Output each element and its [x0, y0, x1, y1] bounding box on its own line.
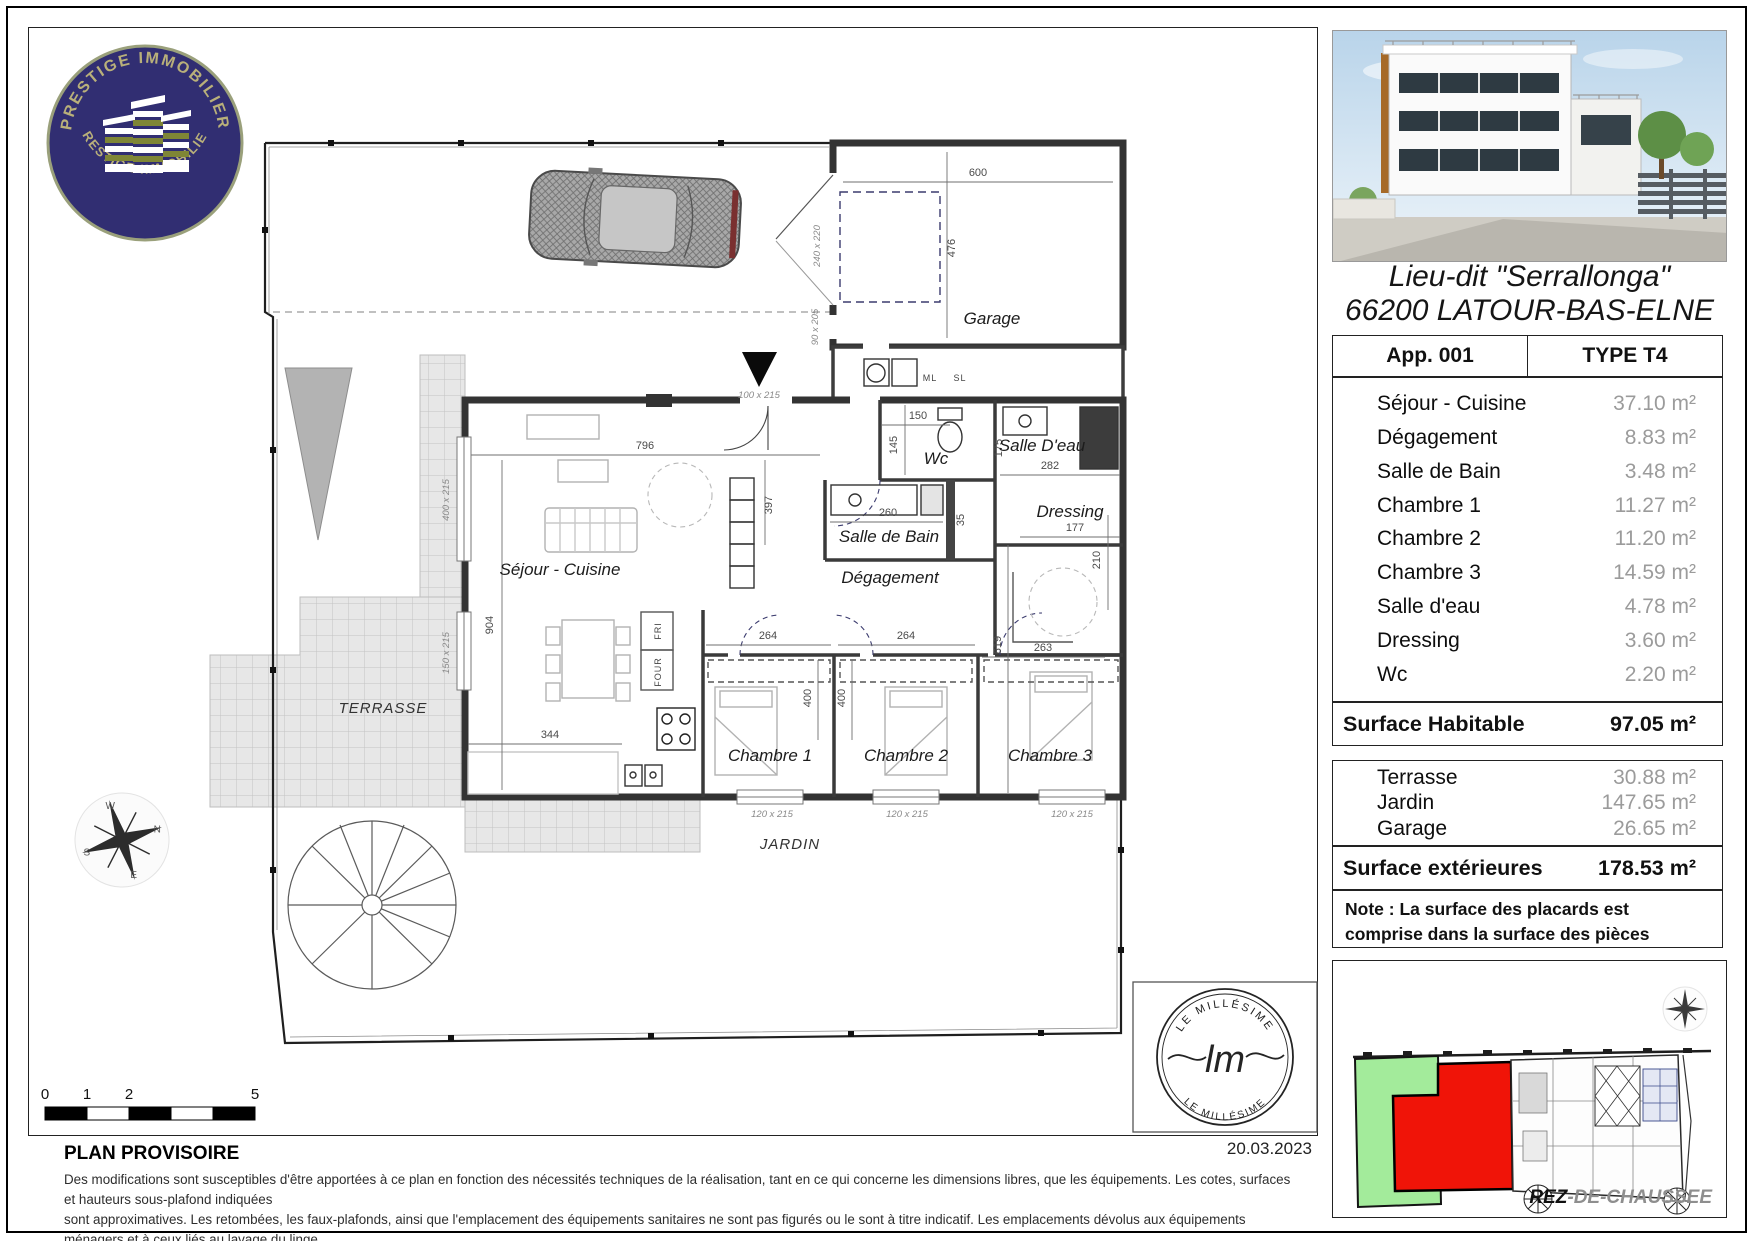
dim-282: 282	[1041, 460, 1059, 472]
surface-exterieures-label: Surface extérieures	[1343, 856, 1543, 881]
scale-bar: 0 1 2 5	[41, 1086, 259, 1120]
table-row: Séjour - Cuisine37.10 m²	[1333, 392, 1722, 416]
window-size-ch3: 120 x 215	[1051, 809, 1093, 820]
exterior-area: 147.65 m²	[1601, 791, 1696, 815]
site-plan-box: REZ-DE-CHAUSSEE	[1332, 960, 1727, 1218]
exterior-area: 26.65 m²	[1613, 817, 1696, 841]
dim-344: 344	[541, 729, 559, 741]
disclaimer-line2: sont approximatives. Les retombées, les …	[64, 1210, 1304, 1241]
address-line2: 66200 LATOUR-BAS-ELNE	[1332, 294, 1727, 328]
surface-habitable-value: 97.05 m²	[1610, 712, 1696, 737]
room-label-sejour: Séjour - Cuisine	[500, 560, 621, 579]
dim-400b: 400	[836, 689, 848, 707]
table-row: Terrasse30.88 m²	[1333, 766, 1722, 790]
compass-n: N	[154, 825, 161, 836]
address-line1: Lieu-dit "Serrallonga"	[1332, 260, 1727, 294]
room-label-dressing: Dressing	[1036, 502, 1104, 521]
room-name: Dégagement	[1377, 426, 1497, 450]
ramp-triangle	[285, 368, 352, 540]
site-compass-icon	[1663, 987, 1707, 1031]
surface-exterieures-value: 178.53 m²	[1598, 856, 1696, 881]
site-plan-drawing	[1333, 961, 1724, 1215]
room-name: Salle d'eau	[1377, 595, 1480, 619]
dim-796: 796	[636, 440, 654, 452]
table-row: Chambre 111.27 m²	[1333, 494, 1722, 518]
room-name: Séjour - Cuisine	[1377, 392, 1526, 416]
compass-icon: W N E S	[63, 781, 181, 899]
car-icon	[528, 165, 743, 274]
dim-145: 145	[888, 436, 900, 454]
dim-904: 904	[484, 616, 496, 634]
window-size-west2: 150 x 215	[441, 631, 452, 673]
table-row: Salle d'eau4.78 m²	[1333, 595, 1722, 619]
compass-s: S	[83, 847, 90, 858]
exterior-area: 30.88 m²	[1613, 766, 1696, 790]
room-name: Chambre 1	[1377, 494, 1481, 518]
room-area: 37.10 m²	[1613, 392, 1696, 416]
scale-0: 0	[41, 1086, 49, 1103]
room-areas-table: Séjour - Cuisine37.10 m² Dégagement8.83 …	[1332, 377, 1723, 702]
dim-150: 150	[909, 410, 927, 422]
room-name: Chambre 2	[1377, 527, 1481, 551]
table-row: Salle de Bain3.48 m²	[1333, 460, 1722, 484]
side-door-size: 90 x 205	[810, 308, 821, 345]
floor-level-label: REZ-DE-CHAUSSEE	[1529, 1187, 1712, 1209]
scale-1: 1	[83, 1086, 91, 1103]
dim-397: 397	[763, 496, 775, 514]
room-area: 11.27 m²	[1615, 494, 1696, 518]
garage-door-size: 240 x 220	[812, 224, 823, 267]
dim-619: 619	[992, 636, 1004, 654]
room-name: Chambre 3	[1377, 561, 1481, 585]
building-photo	[1332, 30, 1727, 262]
exterior-name: Jardin	[1377, 791, 1434, 815]
exterior-areas-table: Terrasse30.88 m² Jardin147.65 m² Garage2…	[1332, 760, 1723, 846]
dim-264b: 264	[897, 630, 915, 642]
plan-status-title: PLAN PROVISOIRE	[64, 1143, 239, 1165]
agency-logo: PRESTIGE IMMOBILIER PRESTIGE IMMOBILIER	[45, 36, 245, 250]
property-address: Lieu-dit "Serrallonga" 66200 LATOUR-BAS-…	[1332, 260, 1727, 330]
table-row: Wc2.20 m²	[1333, 663, 1722, 687]
compass-w: W	[106, 801, 116, 812]
surface-habitable-row: Surface Habitable 97.05 m²	[1332, 702, 1723, 746]
dim-177: 177	[1066, 522, 1084, 534]
room-area: 3.60 m²	[1625, 629, 1696, 653]
window-size-ch1: 120 x 215	[751, 809, 793, 820]
placards-note: Note : La surface des placards est compr…	[1332, 890, 1723, 948]
disclaimer-line1: Des modifications sont susceptibles d'êt…	[64, 1170, 1304, 1210]
fence-illustration	[1638, 169, 1727, 219]
apartment-type: TYPE T4	[1528, 336, 1722, 376]
floor-level-suffix: -DE-CHAUSSEE	[1567, 1187, 1712, 1208]
room-area: 3.48 m²	[1625, 460, 1696, 484]
dim-263: 263	[1034, 642, 1052, 654]
surface-habitable-label: Surface Habitable	[1343, 712, 1525, 737]
scale-5: 5	[251, 1086, 259, 1103]
table-row: Jardin147.65 m²	[1333, 791, 1722, 815]
room-label-chambre2: Chambre 2	[864, 746, 949, 765]
dim-600: 600	[969, 167, 987, 179]
disclaimer-text: Des modifications sont susceptibles d'êt…	[64, 1170, 1304, 1241]
appliance-label-fri: FRI	[653, 622, 663, 640]
door-size-entry: 100 x 215	[738, 390, 780, 401]
room-label-salle-deau: Salle D'eau	[999, 436, 1086, 455]
entrance-marker	[742, 352, 777, 387]
plan-date: 20.03.2023	[869, 1139, 1314, 1159]
room-label-salle-de-bain: Salle de Bain	[839, 527, 939, 546]
scale-2: 2	[125, 1086, 133, 1103]
room-name: Wc	[1377, 663, 1407, 687]
dim-210: 210	[1091, 551, 1103, 569]
room-area: 8.83 m²	[1625, 426, 1696, 450]
appliance-label-ml: ML	[923, 373, 938, 383]
zone-label-jardin: JARDIN	[759, 836, 820, 853]
stamp-initials: lm	[1205, 1039, 1245, 1081]
dim-264a: 264	[759, 630, 777, 642]
table-row: Chambre 211.20 m²	[1333, 527, 1722, 551]
room-area: 2.20 m²	[1625, 663, 1696, 687]
appliance-label-four: FOUR	[653, 657, 663, 687]
window-size-ch2: 120 x 215	[886, 809, 928, 820]
room-label-chambre3: Chambre 3	[1008, 746, 1093, 765]
room-label-chambre1: Chambre 1	[728, 746, 812, 765]
room-label-degagement: Dégagement	[841, 568, 940, 587]
exterior-name: Garage	[1377, 817, 1447, 841]
plan-sheet: 600 476 796 397 904 344 264 264 400 400 …	[0, 0, 1755, 1241]
dim-35: 35	[955, 514, 967, 526]
appliance-label-sl: SL	[953, 373, 966, 383]
room-label-wc: Wc	[924, 449, 949, 468]
window-size-west1: 400 x 215	[441, 478, 452, 520]
dim-260: 260	[879, 507, 897, 519]
table-row: Dressing3.60 m²	[1333, 629, 1722, 653]
zone-label-terrasse: TERRASSE	[339, 700, 428, 717]
apartment-table-header: App. 001 TYPE T4	[1332, 335, 1723, 377]
room-name: Salle de Bain	[1377, 460, 1501, 484]
surface-exterieures-row: Surface extérieures 178.53 m²	[1332, 846, 1723, 890]
compass-e: E	[130, 870, 137, 881]
dim-476: 476	[946, 239, 958, 257]
dim-400a: 400	[802, 689, 814, 707]
table-row: Dégagement8.83 m²	[1333, 426, 1722, 450]
table-row: Chambre 314.59 m²	[1333, 561, 1722, 585]
exterior-name: Terrasse	[1377, 766, 1458, 790]
floor-level-prefix: REZ	[1529, 1187, 1567, 1208]
spiral-stair-icon	[288, 821, 456, 989]
room-area: 14.59 m²	[1613, 561, 1696, 585]
room-area: 4.78 m²	[1625, 595, 1696, 619]
table-row: Garage26.65 m²	[1333, 817, 1722, 841]
room-area: 11.20 m²	[1615, 527, 1696, 551]
room-name: Dressing	[1377, 629, 1460, 653]
room-label-garage: Garage	[964, 309, 1021, 328]
millesime-stamp: LE MILLÉSIME LE MILLÉSIME lm	[1133, 982, 1317, 1132]
apartment-number: App. 001	[1333, 336, 1528, 376]
